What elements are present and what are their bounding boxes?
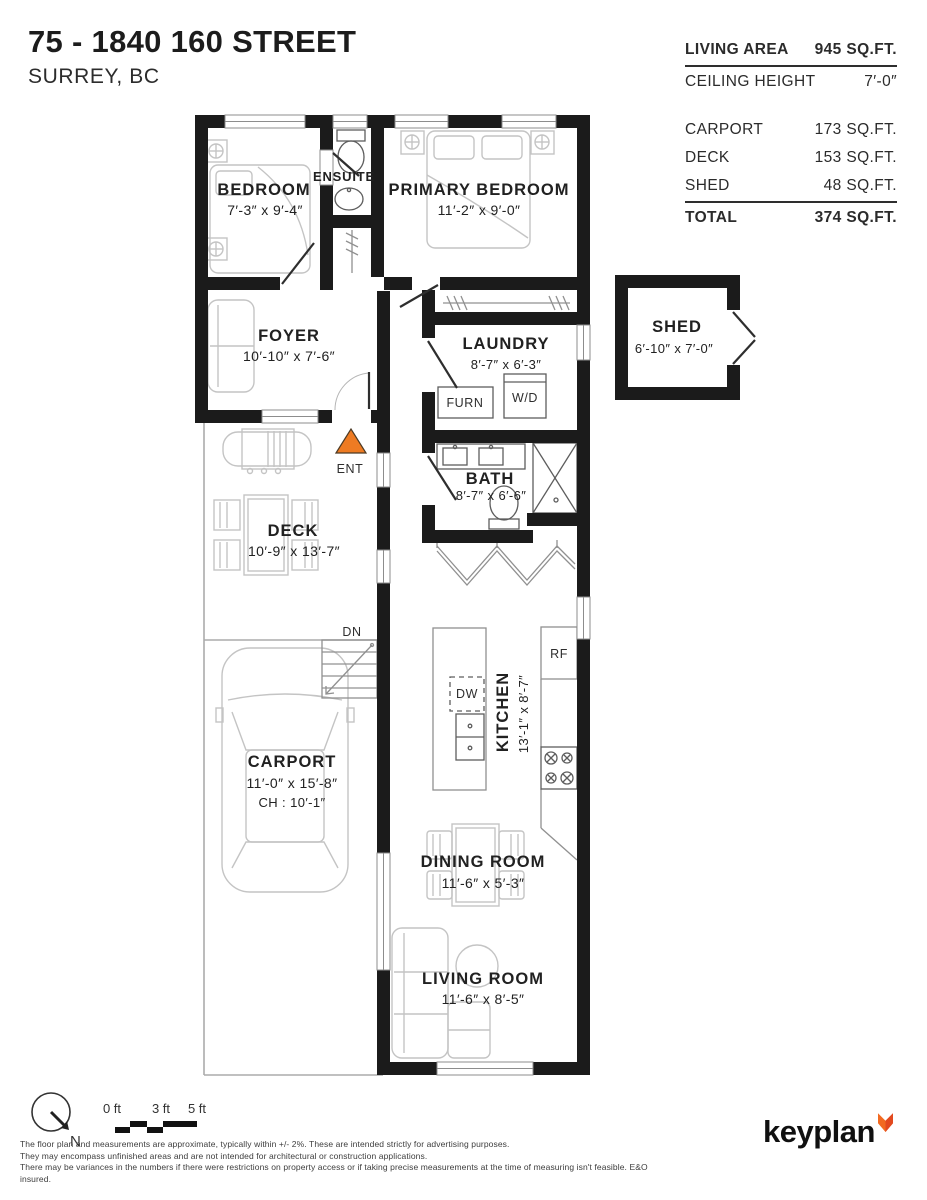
floor-plan: BEDROOM 7′-3″ x 9′-4″ ENSUITE PRIMARY BE… xyxy=(0,0,927,1200)
ensuite-sink-icon xyxy=(335,188,363,210)
foyer-label: FOYER xyxy=(258,327,320,345)
bath-dims: 8′-7″ x 6′-6″ xyxy=(456,488,527,503)
scale-three: 3 ft xyxy=(152,1101,170,1116)
shed-label: SHED xyxy=(652,318,702,336)
keyplan-logo: keyplan xyxy=(763,1114,894,1150)
entry-marker xyxy=(336,429,366,453)
kitchen-counter-icon xyxy=(541,679,577,860)
laundry-label: LAUNDRY xyxy=(462,335,549,353)
fridge-label: RF xyxy=(550,647,568,661)
disclaimer-line-3: There may be variances in the numbers if… xyxy=(20,1162,660,1185)
bedroom-label: BEDROOM xyxy=(217,181,310,199)
primary-bedroom-dims: 11′-2″ x 9′-0″ xyxy=(438,202,521,218)
carport-ceiling: CH : 10′-1″ xyxy=(258,795,325,810)
dishwasher-label: DW xyxy=(456,687,478,701)
room-labels: BEDROOM 7′-3″ x 9′-4″ ENSUITE PRIMARY BE… xyxy=(217,169,713,1007)
walls xyxy=(195,115,740,1075)
living-room-dims: 11′-6″ x 8′-5″ xyxy=(442,991,525,1007)
disclaimer-line-2: They may encompass unfinished areas and … xyxy=(20,1151,660,1163)
scale-bar: 0 ft 3 ft 5 ft xyxy=(103,1101,206,1133)
shed-dims: 6′-10″ x 7′-0″ xyxy=(635,341,713,356)
dining-room-dims: 11′-6″ x 5′-3″ xyxy=(442,875,525,891)
carport-label: CARPORT xyxy=(248,753,337,771)
closet-rod-icon xyxy=(346,230,358,273)
bedroom-dims: 7′-3″ x 9′-4″ xyxy=(227,202,303,218)
bay-window-icon xyxy=(437,540,575,585)
shower-icon xyxy=(533,443,577,513)
kitchen-dims: 13′-1″ x 8′-7″ xyxy=(516,675,531,753)
stairs-icon xyxy=(322,640,377,698)
foyer-dims: 10′-10″ x 7′-6″ xyxy=(243,348,335,364)
furnace-label: FURN xyxy=(446,396,483,410)
deck-label: DECK xyxy=(268,522,319,540)
washer-dryer-label: W/D xyxy=(512,391,538,405)
bbq-grill-icon xyxy=(223,429,311,474)
kitchen-island-icon xyxy=(433,628,486,790)
carport-dims: 11′-0″ x 15′-8″ xyxy=(247,775,338,791)
bath-vanity-icon xyxy=(437,444,525,469)
fox-icon xyxy=(877,1112,894,1137)
stairs-down-label: DN xyxy=(342,625,361,639)
laundry-dims: 8′-7″ x 6′-3″ xyxy=(471,357,542,372)
entry-label: ENT xyxy=(337,462,364,476)
keyplan-wordmark: keyplan xyxy=(763,1114,875,1150)
ensuite-label: ENSUITE xyxy=(313,169,375,184)
stove-icon xyxy=(541,747,577,789)
outdoor-boundaries xyxy=(204,423,383,1075)
ensuite-toilet-icon xyxy=(337,130,365,173)
foyer-couch-icon xyxy=(208,300,254,392)
kitchen-label: KITCHEN xyxy=(494,672,512,752)
scale-five: 5 ft xyxy=(188,1101,206,1116)
disclaimer: The floor plan and measurements are appr… xyxy=(20,1139,660,1185)
living-room-label: LIVING ROOM xyxy=(422,970,544,988)
deck-dims: 10′-9″ x 13′-7″ xyxy=(248,543,340,559)
windows xyxy=(225,115,590,1075)
laundry-closet-rod-icon xyxy=(443,296,570,310)
dining-room-label: DINING ROOM xyxy=(421,853,546,871)
scale-zero: 0 ft xyxy=(103,1101,121,1116)
primary-bedroom-label: PRIMARY BEDROOM xyxy=(389,181,570,199)
disclaimer-line-1: The floor plan and measurements are appr… xyxy=(20,1139,660,1151)
bath-label: BATH xyxy=(466,470,515,488)
